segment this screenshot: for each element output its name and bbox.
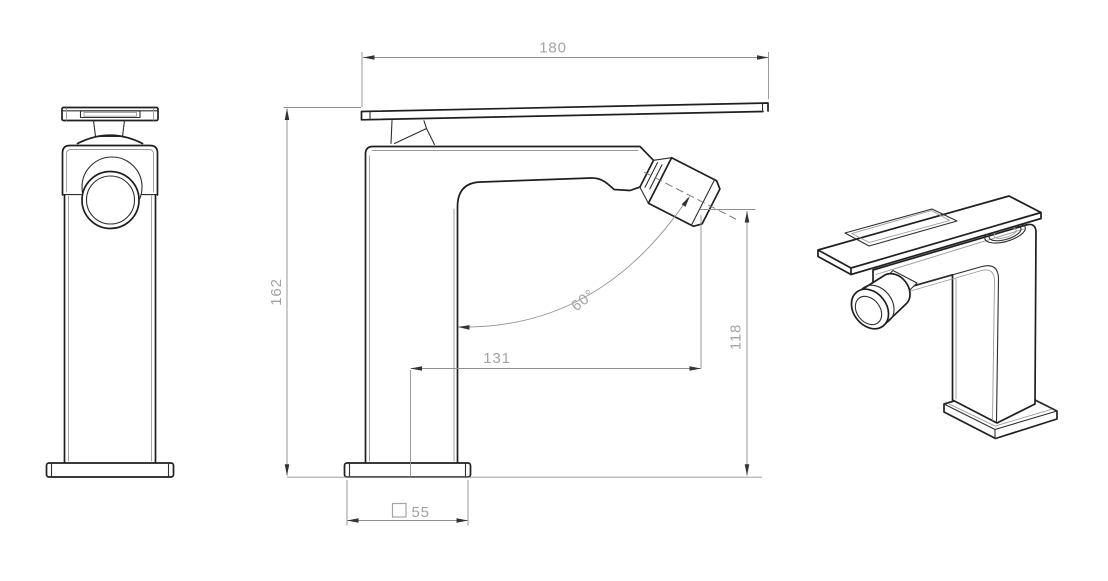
arrow-right xyxy=(757,55,769,60)
arrow-right xyxy=(457,518,469,523)
dimension-outlet-height: 118 xyxy=(700,210,756,476)
dimension-lines xyxy=(284,108,362,476)
arrow-arc-start xyxy=(458,325,470,330)
arrow-left xyxy=(363,55,375,60)
dimension-label-162: 162 xyxy=(268,278,285,305)
dimension-label-180: 180 xyxy=(539,40,566,57)
base-edge-ticks xyxy=(52,464,169,476)
side-view xyxy=(345,103,769,477)
dimension-base-size: 55 xyxy=(347,480,468,526)
dimension-label-55: 55 xyxy=(412,504,430,521)
dimension-top-width: 180 xyxy=(362,40,769,108)
aerator-neck xyxy=(640,158,672,204)
isometric-view xyxy=(818,196,1057,439)
lever-end-caps xyxy=(370,103,763,119)
base-edge-ticks xyxy=(350,464,466,476)
arrow-left xyxy=(347,518,359,523)
dimension-lines xyxy=(362,52,769,107)
dimension-label-118: 118 xyxy=(728,324,745,350)
square-symbol xyxy=(393,504,407,518)
body-outline xyxy=(366,147,654,463)
arrow-bottom xyxy=(745,464,750,476)
arrow-top xyxy=(285,109,290,121)
technical-drawing-page: 180 162 131 118 60° xyxy=(0,0,1108,581)
spout-underside-profile xyxy=(458,178,640,463)
aerator-cap-circle xyxy=(82,172,139,229)
base-plate xyxy=(345,463,471,477)
handle-stem xyxy=(94,121,125,137)
dimension-outlet-angle: 60° xyxy=(458,195,692,330)
arrow-right xyxy=(690,366,702,371)
arrow-bottom xyxy=(285,464,290,476)
aerator-body xyxy=(648,158,720,227)
dimension-label-60deg: 60° xyxy=(568,286,598,315)
body-edge-highlights xyxy=(370,151,639,462)
dimension-overall-height: 162 xyxy=(268,108,361,476)
base-plate xyxy=(47,463,174,477)
body-side-highlights xyxy=(69,196,152,461)
body-sides xyxy=(65,195,156,463)
dimension-lines xyxy=(347,480,468,526)
aerator-centerline xyxy=(644,172,736,219)
arrow-top xyxy=(745,211,750,223)
handle-plate xyxy=(62,108,158,121)
dimension-label-131: 131 xyxy=(483,350,510,367)
front-view xyxy=(47,108,174,478)
handle-recess-inner xyxy=(84,112,137,116)
arrow-left xyxy=(411,366,423,371)
faucet-technical-drawing: 180 162 131 118 60° xyxy=(0,0,1108,581)
lever-stem xyxy=(391,121,435,145)
lever-handle xyxy=(362,103,769,120)
arrow-arc-end xyxy=(682,195,692,207)
